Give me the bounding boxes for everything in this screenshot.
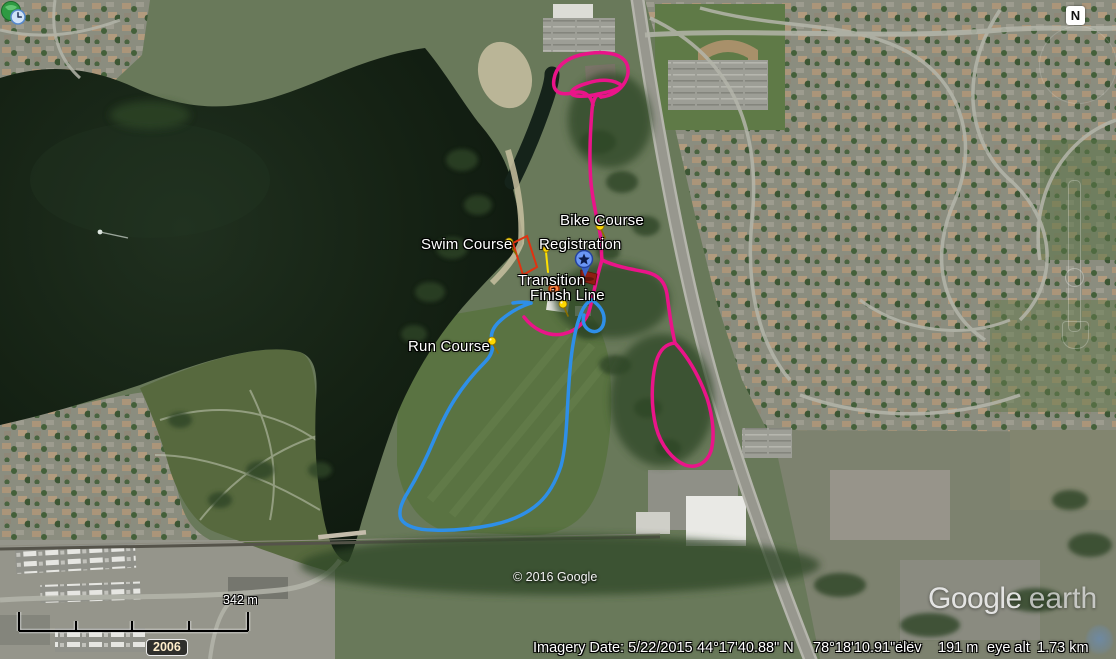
copyright-text: © 2016 Google: [513, 570, 597, 584]
elevation-value: 191 m: [938, 640, 978, 656]
status-bar: Imagery Date: 5/22/2015 44°17'40.88" N 7…: [0, 640, 1116, 659]
compass-north-button[interactable]: N: [1066, 6, 1085, 25]
swim-course-rectangle[interactable]: [513, 236, 537, 275]
bike-course-path-se-loop[interactable]: [652, 343, 713, 466]
course-overlay: [0, 0, 1116, 659]
look-joystick-ring[interactable]: [1039, 26, 1116, 104]
swim-course-label[interactable]: Swim Course: [421, 236, 512, 253]
imagery-date-text: Imagery Date: 5/22/2015: [533, 640, 693, 656]
google-earth-viewport[interactable]: Swim Course Bike Course Registration Tra…: [0, 0, 1116, 659]
eye-alt-label: eye alt: [987, 640, 1030, 656]
run-course-label[interactable]: Run Course: [408, 338, 490, 355]
zoom-slider-track[interactable]: [1068, 180, 1081, 332]
bike-course-label[interactable]: Bike Course: [560, 212, 644, 229]
time-slider-clock-icon[interactable]: [0, 0, 28, 28]
latitude-text: 44°17'40.88" N: [697, 640, 794, 656]
logo-google-text: Google: [928, 582, 1022, 615]
bike-course-path-east[interactable]: [602, 260, 675, 343]
run-course-path-connector[interactable]: [513, 302, 531, 303]
google-earth-logo: Googleearth: [928, 582, 1097, 616]
eye-altitude-value: 1.73 km: [1037, 640, 1089, 656]
scale-label: 342 m: [223, 593, 258, 607]
zoom-out-button[interactable]: [1062, 321, 1089, 349]
finish-line-label[interactable]: Finish Line: [530, 287, 605, 304]
elev-label: elev: [895, 640, 922, 656]
logo-earth-text: earth: [1029, 582, 1097, 615]
scale-bar: [19, 612, 248, 631]
registration-label[interactable]: Registration: [539, 236, 621, 253]
zoom-slider-handle[interactable]: [1065, 268, 1084, 287]
